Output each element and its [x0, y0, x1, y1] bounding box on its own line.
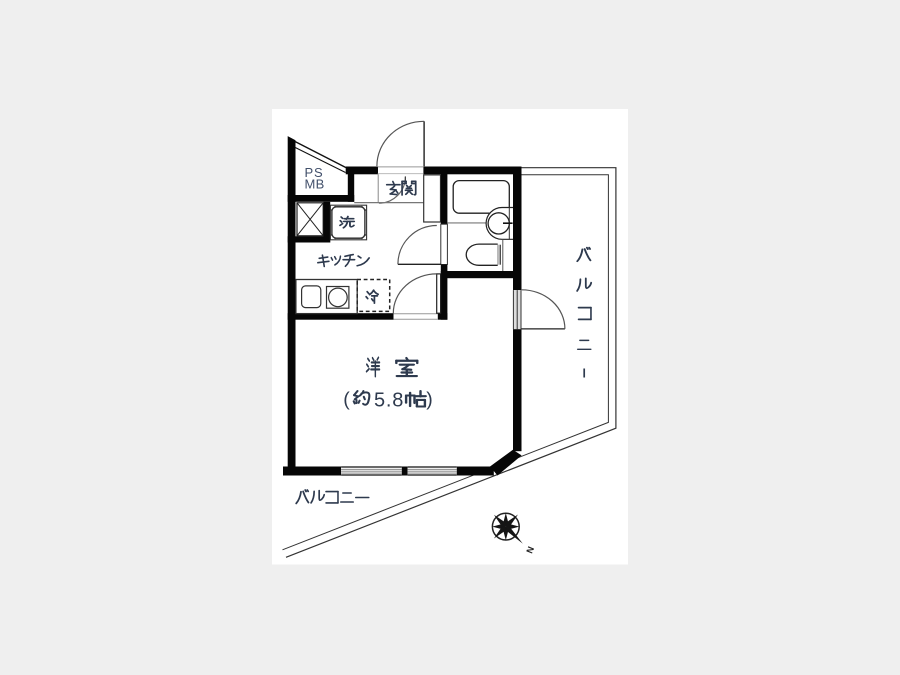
svg-text:MB: MB: [305, 177, 325, 192]
svg-text:(: (: [343, 389, 350, 411]
svg-text:5.8: 5.8: [374, 389, 404, 411]
svg-text:): ): [426, 389, 433, 411]
